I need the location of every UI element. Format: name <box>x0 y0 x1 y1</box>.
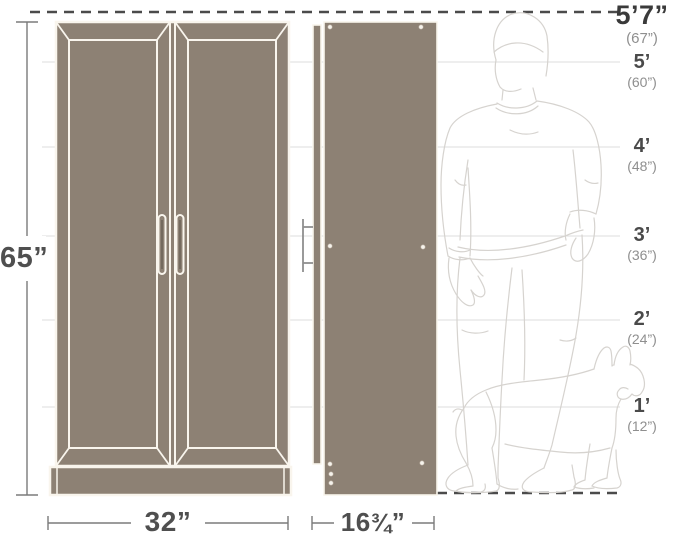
inches-label: (24”) <box>605 330 679 349</box>
feet-label: 5’7” <box>605 1 679 29</box>
cabinet-base <box>50 467 291 495</box>
width-dimension-label: 32” <box>131 504 205 540</box>
feet-label: 4’ <box>605 136 679 157</box>
feet-label: 1’ <box>605 396 679 417</box>
height-dimension-label: 65” <box>0 236 46 281</box>
inches-label: (36”) <box>605 246 679 265</box>
side-view-handle <box>303 219 313 272</box>
height-marker-4ft: 4’ (48”) <box>605 136 679 176</box>
inches-label: (12”) <box>605 417 679 436</box>
depth-dimension-label: 16¾” <box>334 505 412 540</box>
side-view-door-edge <box>313 25 321 464</box>
feet-label: 2’ <box>605 309 679 330</box>
diagram-graphics <box>0 0 679 545</box>
side-view-panel <box>324 22 437 495</box>
depth-fraction: ¾ <box>371 510 392 537</box>
cabinet-side-view <box>303 22 437 495</box>
inches-label: (67”) <box>605 29 679 48</box>
depth-quote: ” <box>392 507 406 537</box>
feet-label: 5’ <box>605 52 679 73</box>
height-marker-1ft: 1’ (12”) <box>605 396 679 436</box>
height-marker-5ft7: 5’7” (67”) <box>605 1 679 48</box>
cabinet-front-view <box>50 22 291 495</box>
inches-label: (48”) <box>605 157 679 176</box>
dimension-diagram: 65” 32” 16¾” 5’7” (67”) 5’ (60”) 4’ (48”… <box>0 0 679 545</box>
depth-whole: 16 <box>341 507 371 537</box>
inches-label: (60”) <box>605 73 679 92</box>
height-marker-2ft: 2’ (24”) <box>605 309 679 349</box>
height-marker-3ft: 3’ (36”) <box>605 225 679 265</box>
height-marker-5ft: 5’ (60”) <box>605 52 679 92</box>
feet-label: 3’ <box>605 225 679 246</box>
person-outline <box>441 13 601 493</box>
